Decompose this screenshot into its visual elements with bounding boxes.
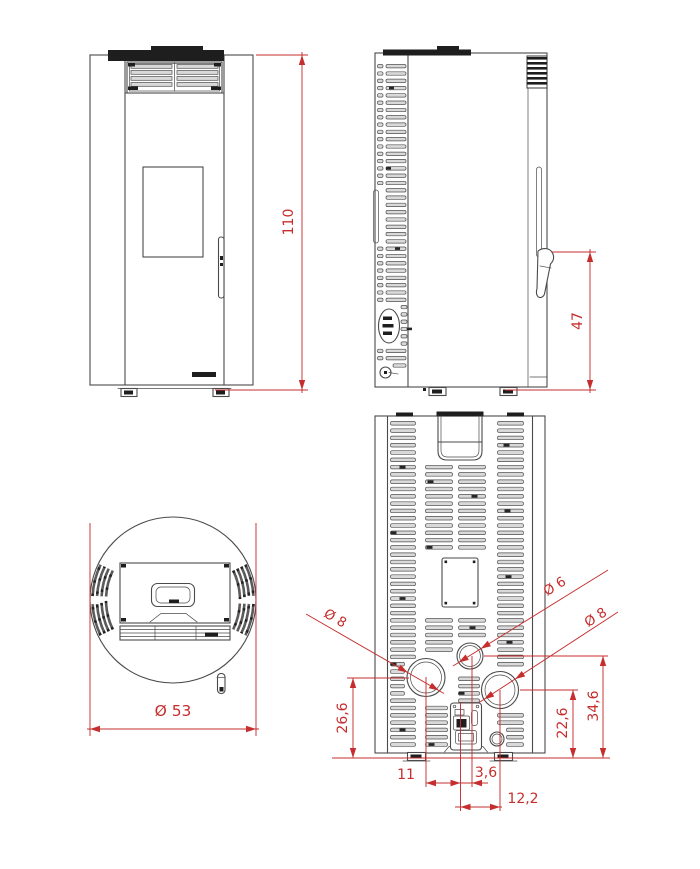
vent-slot [386, 138, 406, 141]
vent-slot [391, 451, 416, 455]
vent-slot [386, 298, 406, 301]
dim-label-left-flue: Ø 8 [321, 606, 349, 632]
slot-shadow [391, 531, 397, 534]
vent-slot [378, 72, 384, 75]
vent-slot [498, 589, 524, 593]
vent-slot [386, 240, 406, 243]
vent-slot [391, 641, 416, 645]
top-grille-side [527, 56, 547, 88]
vent-slot [459, 465, 486, 469]
slot-shadow [389, 87, 394, 90]
vent-slot [378, 159, 384, 162]
dimension-arrow [461, 804, 471, 810]
vent-slot [391, 699, 416, 703]
vent-slot [378, 276, 384, 279]
vent-slot [378, 138, 384, 141]
slot-shadow [400, 466, 406, 469]
front-grille-top [120, 626, 230, 640]
vent-slot [498, 487, 524, 491]
vent-slot [378, 269, 384, 272]
top-plate-outline [120, 563, 230, 623]
vent-slot [426, 633, 453, 637]
vent-slot [386, 152, 406, 155]
slot-shadow [507, 641, 513, 644]
dim-label-right-offset: 12,2 [507, 791, 538, 807]
vent-slot [391, 626, 416, 630]
dim-label-right-flue-height: 22,6 [555, 707, 571, 738]
vent-slot [386, 94, 406, 97]
vent-slot [386, 108, 406, 111]
dimension-arrow [299, 55, 305, 65]
vent-slot [391, 443, 416, 447]
vent-slot [386, 291, 406, 294]
vent-slot [459, 538, 486, 542]
vent-slot [386, 196, 406, 199]
vent-slot [498, 458, 524, 462]
vent-slot [386, 211, 406, 214]
dimension-arrow [587, 380, 593, 390]
vent-slot [391, 648, 416, 652]
vent-slot [498, 721, 524, 725]
vent-slot [498, 465, 524, 469]
slot-shadow [400, 729, 406, 732]
vent-slot [401, 305, 407, 308]
vent-slot [391, 509, 416, 513]
vent-slot [426, 516, 453, 520]
vent-slot [386, 65, 406, 68]
dimension-arrow [490, 804, 500, 810]
vent-slot [386, 101, 406, 104]
vent-slot [378, 247, 384, 250]
dimension-arrow [426, 780, 436, 786]
vent-slot [391, 706, 416, 710]
vent-slot [391, 436, 416, 440]
vent-slot [498, 422, 524, 426]
vent-slot [498, 524, 524, 528]
slot-shadow [505, 510, 511, 513]
vent-slot [386, 181, 406, 184]
vent-slot [378, 254, 384, 257]
vent-slot [391, 589, 416, 593]
dim-label-right-flue: Ø 8 [582, 605, 610, 631]
vent-slot [507, 735, 524, 739]
dimension-arrow [350, 678, 356, 688]
vent-slot [426, 641, 453, 645]
vent-slot [378, 116, 384, 119]
leveling-feet-side [423, 388, 517, 396]
vent-slot [391, 516, 416, 520]
vent-slot [426, 465, 453, 469]
vent-slot [498, 429, 524, 433]
vent-slot [459, 633, 486, 637]
vent-slot [378, 94, 384, 97]
vent-slot [459, 524, 486, 528]
vent-slot [498, 546, 524, 550]
vent-slot [507, 743, 524, 747]
leveling-feet-front [121, 389, 229, 397]
door-handle-side [537, 249, 554, 298]
vent-slot [378, 65, 384, 68]
vent-slot [391, 619, 416, 623]
vent-slot [498, 604, 524, 608]
top-plate-tab [151, 46, 203, 51]
vent-slot [386, 349, 406, 352]
dimension-arrow [246, 726, 256, 732]
vent-slot [391, 692, 405, 696]
vent-slot [386, 130, 406, 133]
dim-label-handle-height: 47 [570, 312, 586, 330]
vent-slot [459, 531, 486, 535]
dimension-arrow [570, 748, 576, 758]
vent-slot [391, 473, 416, 477]
vent-slot [386, 254, 406, 257]
dim-label-intake-offset: 3,6 [475, 765, 497, 781]
rear-view [375, 412, 545, 762]
vent-slot [459, 509, 486, 513]
dimension-arrow [600, 656, 606, 666]
vent-slot [426, 509, 453, 513]
vent-slot [378, 101, 384, 104]
dimension-arrow [600, 748, 606, 758]
vent-slot [386, 79, 406, 82]
dimension-arrow [587, 252, 593, 262]
vent-slot [498, 626, 524, 630]
vent-slot [498, 516, 524, 520]
vent-slot [498, 582, 524, 586]
vent-slot [391, 546, 416, 550]
vent-slot [498, 611, 524, 615]
vent-slot [498, 597, 524, 601]
vent-slot [391, 735, 416, 739]
slot-shadow [395, 247, 400, 250]
dim-label-left-offset: 11 [397, 767, 415, 783]
vent-slot [426, 473, 453, 477]
vent-slot [391, 568, 416, 572]
slot-shadow [472, 495, 478, 498]
vent-slot [391, 495, 416, 499]
vent-slot [391, 721, 416, 725]
vent-slot [459, 677, 480, 681]
vent-slot [498, 568, 524, 572]
vent-slot [391, 714, 416, 718]
slot-shadow [386, 167, 391, 170]
vent-slot [391, 538, 416, 542]
vent-slot [378, 167, 384, 170]
vent-slot [459, 473, 486, 477]
vent-slot [391, 604, 416, 608]
vent-slot [426, 626, 453, 630]
vent-slot [378, 298, 384, 301]
vent-slot [498, 451, 524, 455]
vent-slot [378, 349, 384, 352]
vent-slot [378, 291, 384, 294]
vent-slot [498, 443, 524, 447]
vent-slot [386, 262, 406, 265]
vent-slot [459, 546, 486, 550]
vent-slot [426, 714, 448, 718]
vent-slot [401, 320, 407, 323]
top-plate-tab-side [437, 46, 459, 50]
vent-slot [391, 502, 416, 506]
vent-slot [426, 538, 453, 542]
vent-slot [391, 422, 416, 426]
vent-slot [386, 276, 406, 279]
vent-slot [391, 524, 416, 528]
vent-slot [498, 538, 524, 542]
vent-slot [426, 728, 448, 732]
vent-slot [459, 684, 480, 688]
vent-slot [391, 684, 405, 688]
vent-slot [378, 181, 384, 184]
vent-slot [426, 721, 448, 725]
power-junction-box [445, 703, 488, 752]
vent-slot [386, 232, 406, 235]
vent-slot [386, 116, 406, 119]
vent-slot [391, 553, 416, 557]
vent-slot [378, 284, 384, 287]
vent-slot [378, 79, 384, 82]
dim-label-diameter: Ø 53 [155, 702, 192, 720]
vent-slot [459, 502, 486, 506]
vent-slot [391, 582, 416, 586]
vent-slot [391, 429, 416, 433]
vent-slot [378, 86, 384, 89]
brand-logo [192, 372, 216, 377]
slot-shadow [429, 743, 435, 746]
dim-label-height: 110 [281, 209, 297, 236]
dimension-arrow [451, 780, 461, 786]
top-grille [127, 62, 222, 93]
slot-shadow [428, 480, 434, 483]
slot-shadow [407, 328, 412, 331]
hopper-cap [437, 412, 484, 417]
vent-slot [378, 108, 384, 111]
vent-slot [459, 619, 486, 623]
vent-slot [426, 531, 453, 535]
vent-slot [386, 203, 406, 206]
side-view [374, 46, 554, 396]
vent-slot [391, 458, 416, 462]
vent-slot [498, 714, 524, 718]
vent-slot [378, 123, 384, 126]
vent-slot [498, 662, 524, 666]
vent-slot [391, 480, 416, 484]
vent-slot [386, 123, 406, 126]
vent-slot [386, 225, 406, 228]
vent-slot [386, 145, 406, 148]
vent-slot [401, 335, 407, 338]
vent-slot [378, 262, 384, 265]
front-view [90, 46, 253, 397]
vent-slot [426, 735, 448, 739]
vent-slot [391, 560, 416, 564]
vent-slot [459, 487, 486, 491]
top-view [90, 517, 256, 694]
vent-slot [426, 524, 453, 528]
vent-slot [498, 436, 524, 440]
vent-slot [378, 145, 384, 148]
vent-slot [498, 553, 524, 557]
vent-slot [426, 495, 453, 499]
vent-slot [386, 269, 406, 272]
drawing-canvas: 110 47 Ø 53 Ø 8 Ø 6 Ø 8 26, [0, 0, 700, 869]
vent-slot [426, 619, 453, 623]
vent-slot [386, 174, 406, 177]
vent-slot [401, 342, 407, 345]
vent-slot [507, 728, 524, 732]
vent-slot [393, 364, 406, 367]
vent-slot [498, 495, 524, 499]
vent-slot [498, 480, 524, 484]
slot-shadow [427, 546, 433, 549]
vent-slot [386, 284, 406, 287]
vent-slot [426, 487, 453, 491]
vent-slot [391, 633, 416, 637]
vent-slot [498, 502, 524, 506]
access-panel-cutout [442, 558, 478, 607]
vent-slot [498, 560, 524, 564]
vent-slot [391, 611, 416, 615]
door-handle [219, 237, 225, 298]
vent-slot [426, 502, 453, 506]
dim-label-intake-height: 34,6 [586, 690, 602, 721]
vent-slot [386, 218, 406, 221]
vent-slot [386, 189, 406, 192]
vent-slot [378, 130, 384, 133]
vent-slot [378, 174, 384, 177]
dimension-arrow [90, 726, 100, 732]
front-body-outline [90, 55, 253, 385]
top-plate-side [383, 50, 471, 56]
vent-slot [498, 473, 524, 477]
vent-slot [386, 72, 406, 75]
vent-slot [391, 575, 416, 579]
vent-slot [378, 152, 384, 155]
top-plate [108, 50, 224, 61]
slot-shadow [459, 692, 465, 695]
vent-slot [459, 699, 480, 703]
vent-slot [401, 327, 407, 330]
vent-slot [386, 159, 406, 162]
vent-slot [391, 487, 416, 491]
dimension-arrow [570, 690, 576, 700]
vent-slot [498, 531, 524, 535]
slot-shadow [400, 597, 406, 600]
vent-slot [391, 743, 416, 747]
vent-slot [426, 706, 448, 710]
vent-slot [459, 516, 486, 520]
vent-slot [498, 619, 524, 623]
vent-slot [426, 648, 453, 652]
slot-shadow [504, 444, 510, 447]
vent-slot [391, 655, 416, 659]
vent-slot [459, 480, 486, 484]
slot-shadow [470, 626, 476, 629]
door-handle-top [217, 674, 225, 694]
technical-drawing: 110 47 Ø 53 Ø 8 Ø 6 Ø 8 26, [0, 0, 700, 869]
dim-label-left-flue-height: 26,6 [335, 702, 351, 733]
dimension-arrow [299, 380, 305, 390]
dimension-arrow [350, 748, 356, 758]
vent-slot [498, 648, 524, 652]
slot-shadow [506, 575, 512, 578]
vent-slot [378, 357, 384, 360]
vent-slot [401, 313, 407, 316]
vent-slot [386, 357, 406, 360]
